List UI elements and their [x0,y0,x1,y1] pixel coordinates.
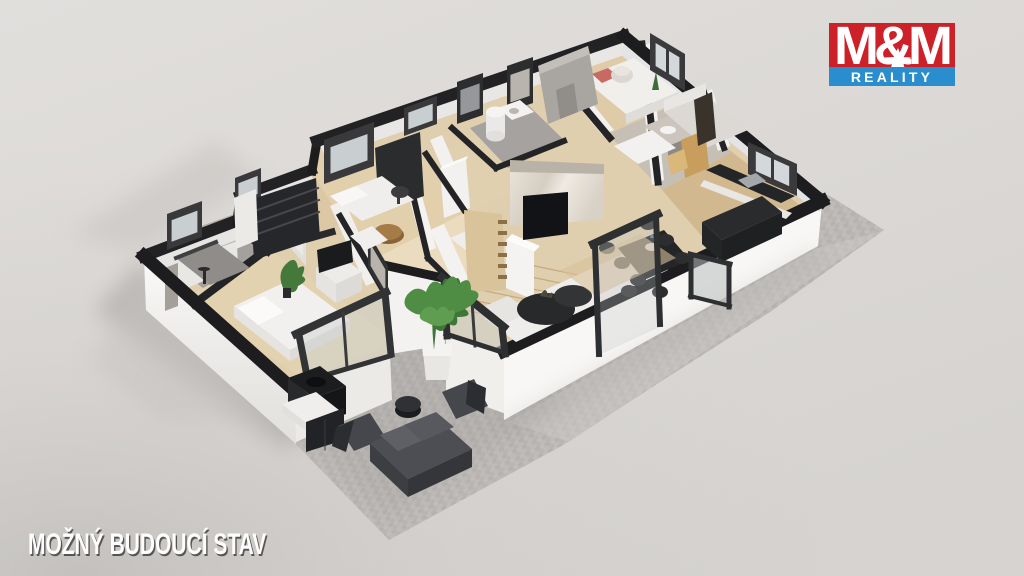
svg-text:REALITY: REALITY [851,69,933,85]
svg-text:MOŽNÝ BUDOUCÍ STAV: MOŽNÝ BUDOUCÍ STAV [28,526,267,561]
